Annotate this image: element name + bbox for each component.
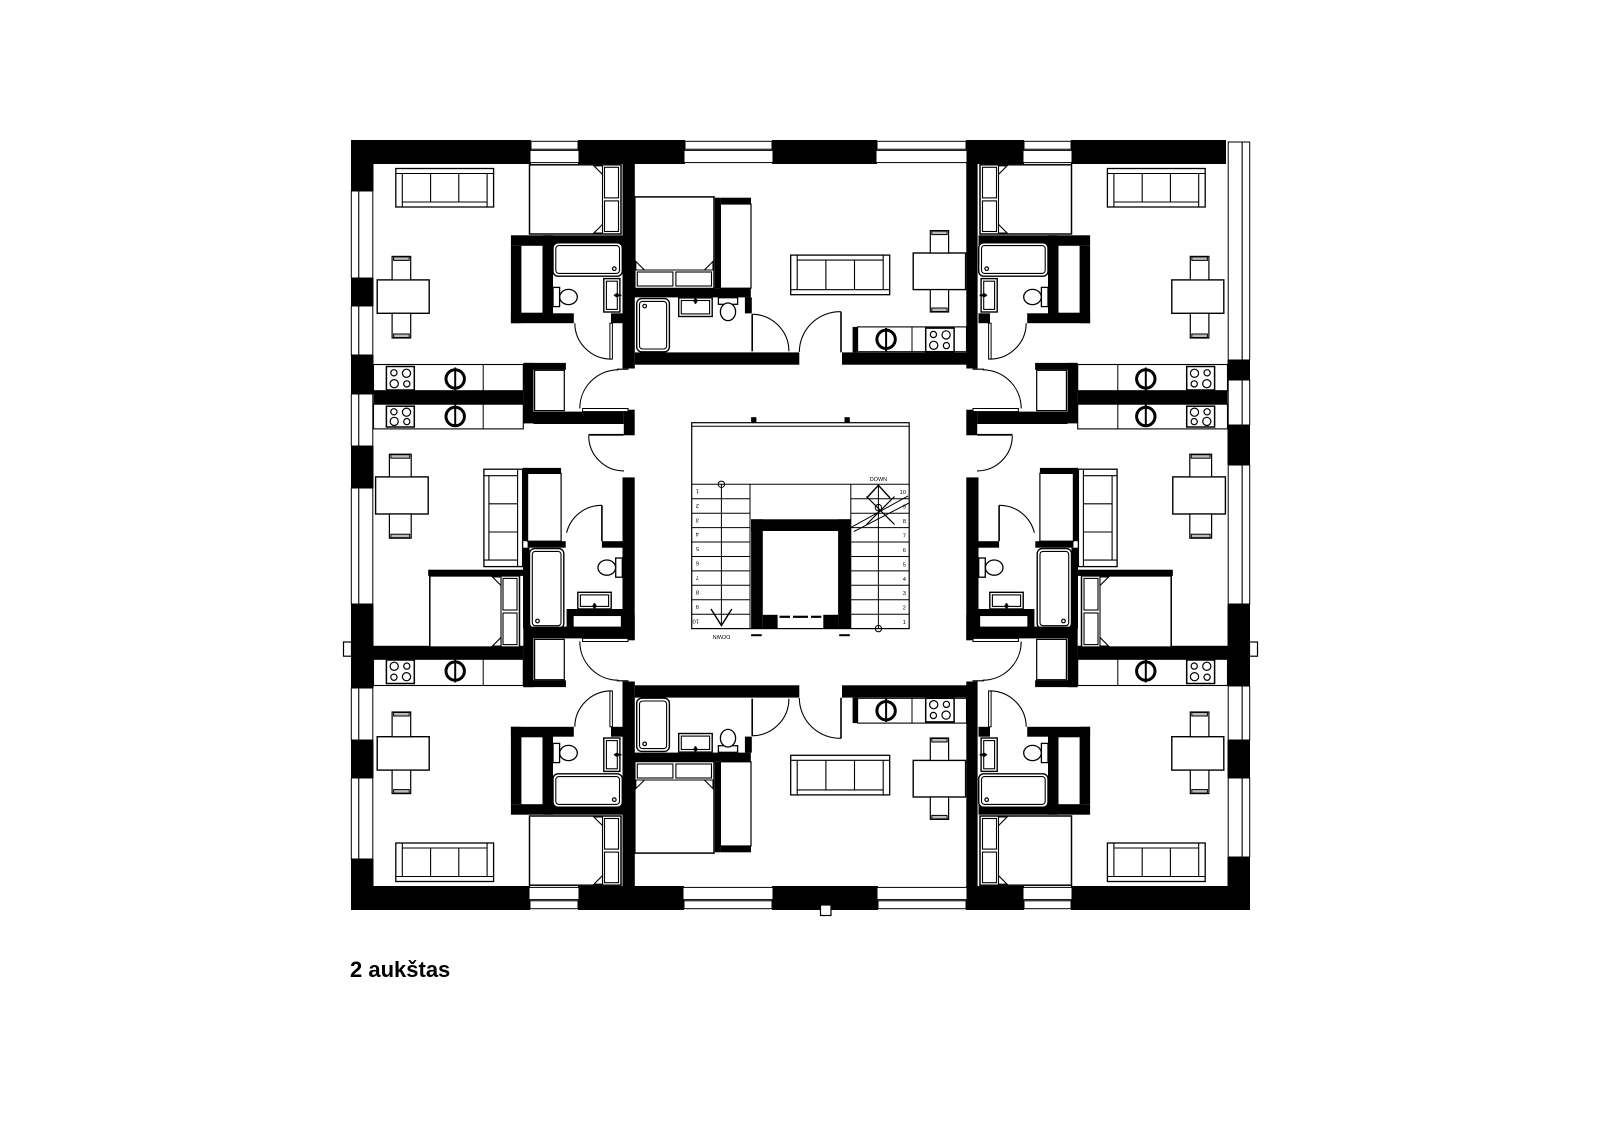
svg-text:2: 2 — [696, 502, 699, 508]
svg-text:6: 6 — [903, 548, 906, 554]
svg-text:2 aukštas: 2 aukštas — [350, 957, 450, 982]
svg-text:8: 8 — [696, 588, 699, 594]
svg-text:7: 7 — [696, 574, 699, 580]
svg-text:DOWN: DOWN — [870, 477, 887, 483]
svg-text:3: 3 — [903, 591, 906, 597]
svg-text:2: 2 — [903, 606, 906, 612]
svg-text:7: 7 — [903, 534, 906, 540]
svg-text:DOWN: DOWN — [713, 633, 730, 639]
svg-text:3: 3 — [696, 516, 699, 522]
svg-text:5: 5 — [696, 545, 699, 551]
svg-text:10: 10 — [900, 490, 906, 496]
svg-text:10: 10 — [693, 617, 699, 623]
svg-text:9: 9 — [696, 603, 699, 609]
svg-text:1: 1 — [696, 487, 699, 493]
svg-text:1: 1 — [903, 620, 906, 626]
svg-text:8: 8 — [903, 519, 906, 525]
svg-text:5: 5 — [903, 562, 906, 568]
svg-text:6: 6 — [696, 560, 699, 566]
